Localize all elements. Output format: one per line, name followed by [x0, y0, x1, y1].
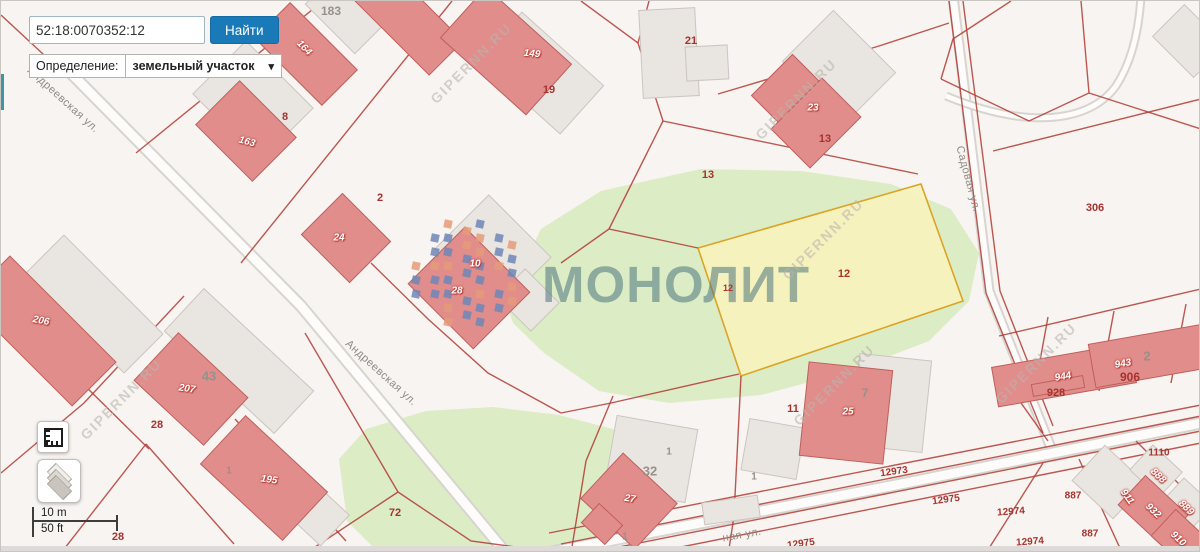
search-bar: Найти: [29, 16, 279, 44]
scale-imperial: 50 ft: [32, 522, 118, 537]
definition-label: Определение:: [30, 55, 125, 77]
definition-filter: Определение: земельный участок ▾: [29, 54, 282, 78]
building-gray: [685, 45, 729, 81]
parcel-boundary: [986, 463, 1043, 552]
map-canvas[interactable]: [1, 1, 1200, 552]
layers-icon: [38, 460, 80, 502]
definition-selected-value: земельный участок: [133, 59, 255, 73]
measure-tool-button[interactable]: [37, 421, 69, 453]
chevron-down-icon: ▾: [269, 60, 275, 73]
scale-metric: 10 m: [32, 507, 118, 522]
cadastral-map-app: МОНОЛИТ Найти Определение: земельный уча…: [0, 0, 1200, 552]
parcel-boundary: [999, 289, 1200, 336]
building-gray: [1153, 5, 1200, 78]
parcel-boundary: [581, 1, 638, 43]
parcel-boundary: [1029, 1, 1089, 121]
building: [1088, 318, 1200, 387]
panel-edge-fragment: [1, 74, 4, 110]
map-edge: [1, 546, 1199, 551]
ruler-icon: [44, 428, 63, 447]
building: [799, 362, 892, 464]
cadastral-number-input[interactable]: [29, 16, 205, 44]
layers-button[interactable]: [37, 459, 81, 503]
definition-select[interactable]: земельный участок ▾: [125, 55, 282, 77]
parcel-boundary: [1089, 93, 1200, 129]
search-button[interactable]: Найти: [210, 16, 279, 44]
scale-bar: 10 m 50 ft: [32, 507, 118, 537]
building-gray: [741, 419, 805, 480]
